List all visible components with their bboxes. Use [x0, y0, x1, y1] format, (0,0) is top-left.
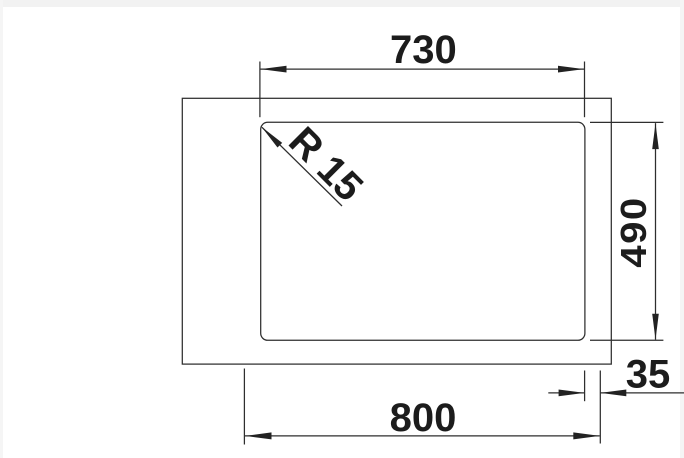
svg-text:800: 800: [390, 396, 457, 440]
svg-text:490: 490: [614, 196, 655, 268]
svg-text:35: 35: [626, 353, 671, 397]
svg-text:730: 730: [390, 28, 457, 72]
